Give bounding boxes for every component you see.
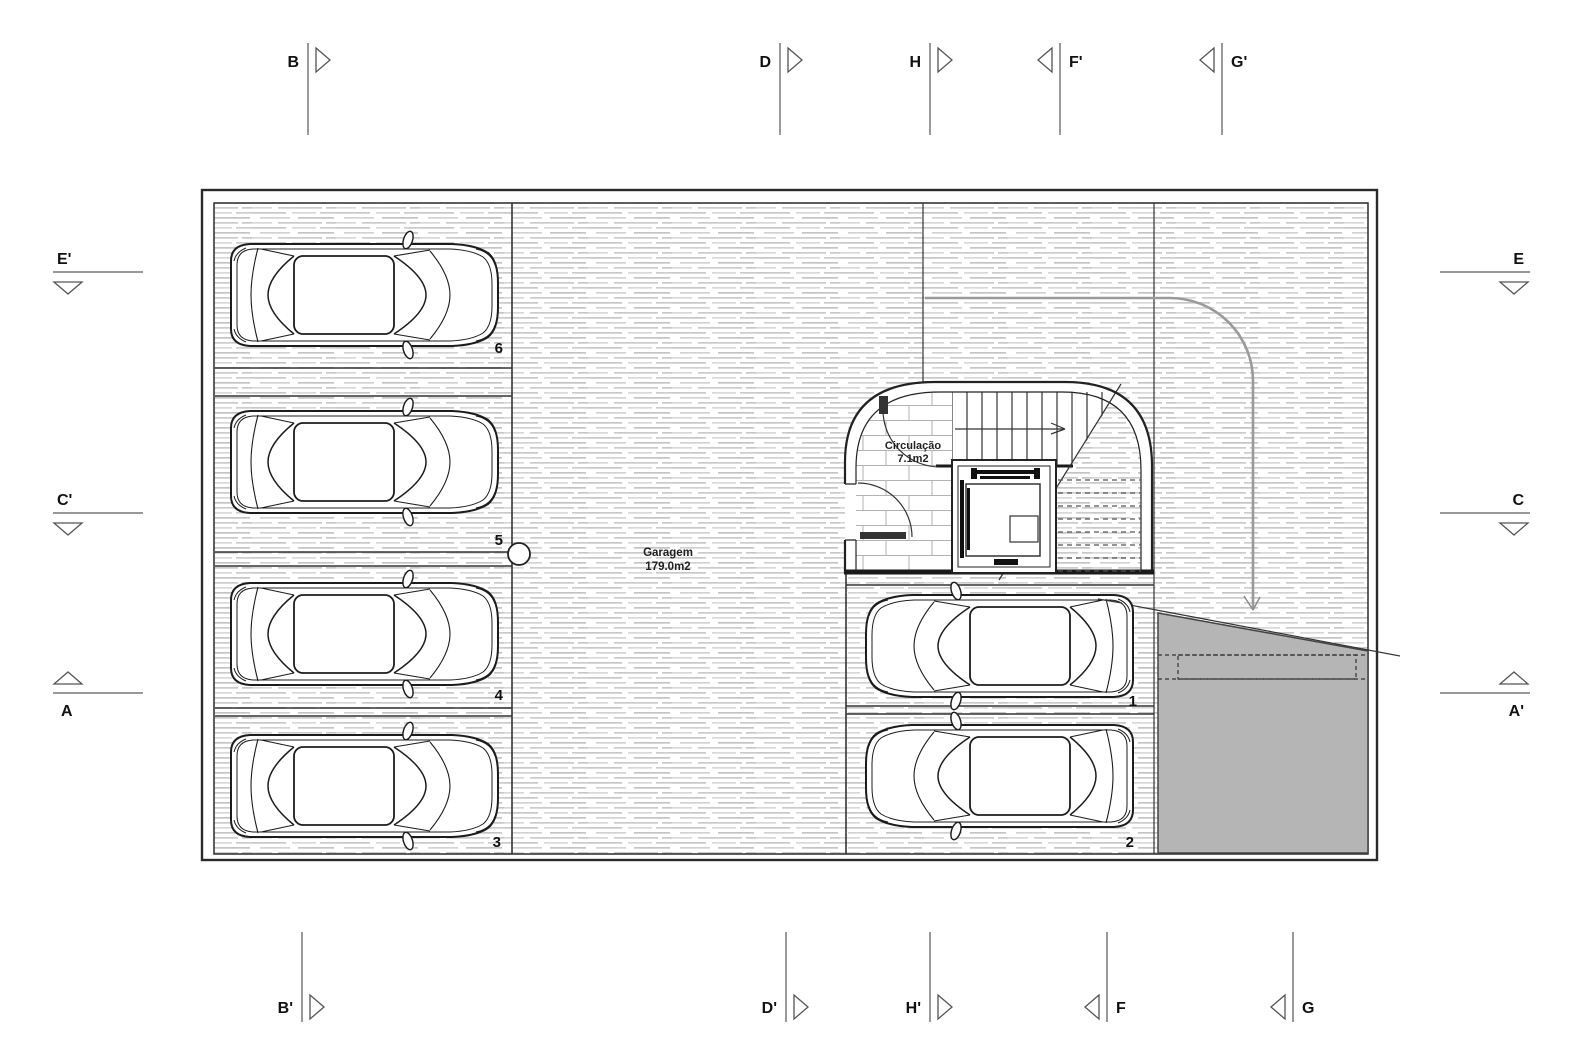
section-marker-B-prime: B' [278, 932, 324, 1022]
circulation-area: 7.1m2 [897, 453, 928, 465]
section-marker-C: C [1440, 492, 1530, 535]
section-arrow-icon [54, 672, 82, 684]
stair-core [844, 382, 1154, 580]
floor-plan-svg: Garagem 179.0m2 Circulação 7.1m2 1 2 3 4… [0, 0, 1572, 1058]
svg-text:E': E' [57, 251, 71, 268]
section-marker-G-prime: G' [1200, 43, 1247, 135]
car-space-1 [866, 581, 1133, 711]
section-marker-A-prime: A' [1440, 672, 1530, 720]
section-marker-D-prime: D' [762, 932, 808, 1022]
section-marker-H: H [909, 43, 952, 135]
svg-text:C': C' [57, 492, 72, 509]
svg-text:A': A' [1509, 703, 1524, 720]
section-markers-left: E' C' A [53, 251, 143, 720]
svg-text:B': B' [278, 1000, 293, 1017]
section-arrow-icon [794, 995, 808, 1019]
section-marker-D: D [759, 43, 802, 135]
car-space-6 [231, 230, 498, 360]
car-space-5 [231, 397, 498, 527]
space-number-4: 4 [495, 687, 504, 704]
svg-text:C: C [1512, 492, 1524, 509]
section-marker-E-prime: E' [53, 251, 143, 294]
circulation-name: Circulação [885, 440, 942, 452]
section-markers-top: B D H F' G' [287, 43, 1247, 135]
section-arrow-icon [788, 48, 802, 72]
section-arrow-icon [938, 48, 952, 72]
section-markers-right: E C A' [1440, 251, 1530, 720]
section-marker-C-prime: C' [53, 492, 143, 535]
section-marker-G: G [1271, 932, 1314, 1022]
space-number-5: 5 [495, 532, 503, 549]
svg-text:E: E [1513, 251, 1524, 268]
svg-text:A: A [61, 703, 73, 720]
section-arrow-icon [1085, 995, 1099, 1019]
section-marker-H-prime: H' [906, 932, 952, 1022]
section-arrow-icon [1500, 523, 1528, 535]
column-circle [508, 543, 530, 565]
garage-area: 179.0m2 [645, 561, 690, 573]
svg-text:H: H [909, 54, 921, 71]
svg-text:D': D' [762, 1000, 777, 1017]
svg-text:G': G' [1231, 54, 1247, 71]
section-arrow-icon [1200, 48, 1214, 72]
car-space-2 [866, 711, 1133, 841]
space-number-1: 1 [1129, 693, 1137, 710]
section-arrow-icon [1500, 282, 1528, 294]
section-marker-A: A [53, 672, 143, 720]
section-arrow-icon [1500, 672, 1528, 684]
section-arrow-icon [1271, 995, 1285, 1019]
section-markers-bottom: B' D' H' F G [278, 932, 1315, 1022]
section-arrow-icon [1038, 48, 1052, 72]
space-number-2: 2 [1126, 834, 1134, 851]
section-arrow-icon [316, 48, 330, 72]
space-number-6: 6 [495, 340, 503, 357]
section-marker-E: E [1440, 251, 1530, 294]
svg-text:B: B [287, 54, 299, 71]
section-arrow-icon [54, 282, 82, 294]
svg-text:G: G [1302, 1000, 1314, 1017]
space-number-3: 3 [493, 834, 501, 851]
svg-text:F: F [1116, 1000, 1126, 1017]
floor-plan-canvas: Garagem 179.0m2 Circulação 7.1m2 1 2 3 4… [0, 0, 1572, 1058]
section-marker-F-prime: F' [1038, 43, 1083, 135]
svg-text:D: D [759, 54, 771, 71]
garage-name: Garagem [643, 547, 693, 559]
section-marker-F: F [1085, 932, 1126, 1022]
section-arrow-icon [54, 523, 82, 535]
section-marker-B: B [287, 43, 330, 135]
car-space-4 [231, 569, 498, 699]
svg-text:H': H' [906, 1000, 921, 1017]
svg-text:F': F' [1069, 54, 1083, 71]
elevator-shaft [952, 460, 1056, 573]
car-space-3 [231, 721, 498, 851]
section-arrow-icon [938, 995, 952, 1019]
section-arrow-icon [310, 995, 324, 1019]
